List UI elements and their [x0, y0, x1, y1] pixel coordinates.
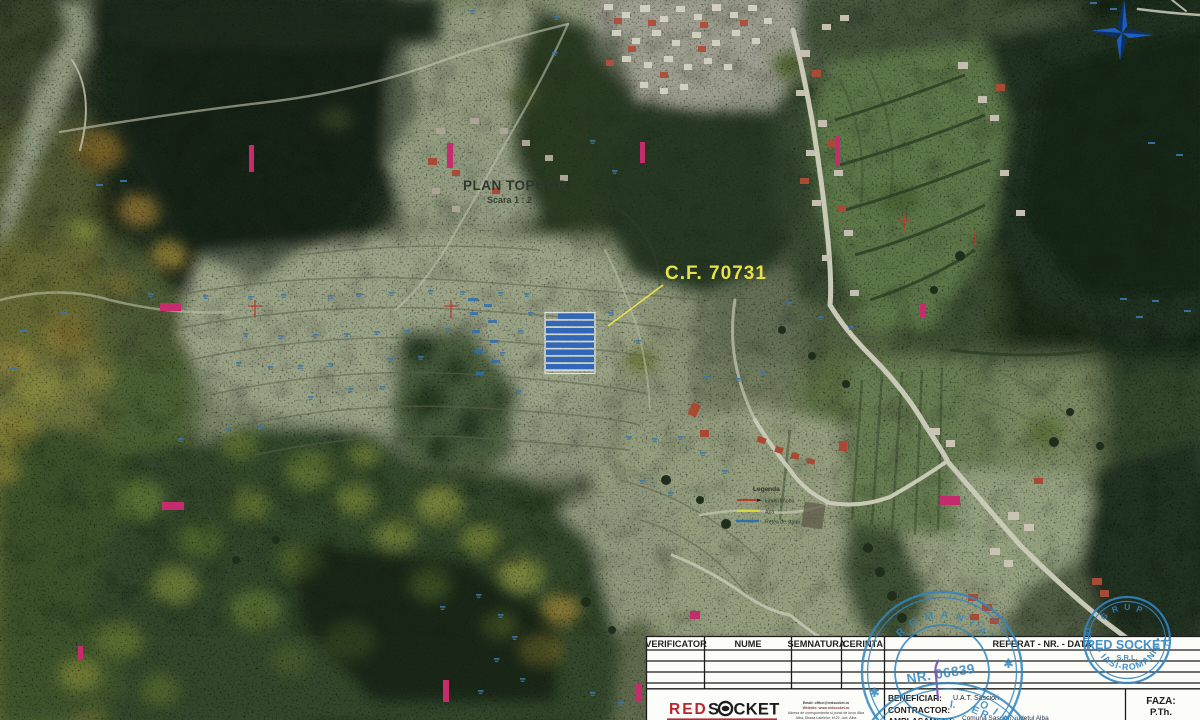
- svg-text:S.R.L.: S.R.L.: [1116, 653, 1137, 662]
- svg-text:Adresa de corespondenta si pun: Adresa de corespondenta si punct de lucr…: [788, 711, 864, 715]
- svg-text:FAZA:: FAZA:: [1146, 696, 1175, 707]
- svg-text:Apa: Apa: [765, 510, 774, 516]
- svg-text:Scara 1 : 2: Scara 1 : 2: [487, 195, 532, 205]
- svg-text:17: 17: [1162, 638, 1171, 647]
- svg-text:VERIFICATOR: VERIFICATOR: [645, 639, 707, 649]
- svg-text:CKET: CKET: [734, 701, 780, 719]
- svg-text:Retea de stalpi: Retea de stalpi: [765, 520, 800, 526]
- svg-text:SEMNATURA: SEMNATURA: [787, 639, 845, 649]
- svg-text:✱: ✱: [1003, 656, 1014, 671]
- svg-text:✱: ✱: [869, 685, 880, 700]
- svg-text:JUD: JUD: [1084, 628, 1093, 644]
- svg-text:Website: www.redsocket.ro: Website: www.redsocket.ro: [803, 706, 851, 710]
- svg-text:Legenda: Legenda: [753, 486, 780, 493]
- svg-text:PLAN TOPOGR: PLAN TOPOGR: [463, 178, 567, 193]
- svg-text:RED: RED: [669, 701, 708, 718]
- svg-text:C.F. 70731: C.F. 70731: [665, 263, 767, 284]
- svg-text:Limita imobil: Limita imobil: [765, 499, 794, 505]
- svg-text:S: S: [708, 701, 719, 719]
- svg-text:Alba, Strada Lalelelor, bl.22,: Alba, Strada Lalelelor, bl.22, Jud. Alba: [796, 716, 857, 720]
- svg-text:REFERAT - NR. - DATA: REFERAT - NR. - DATA: [992, 639, 1091, 649]
- svg-text:Email: office@redsocket.ro: Email: office@redsocket.ro: [803, 701, 850, 705]
- svg-text:NUME: NUME: [734, 639, 761, 649]
- svg-text:P.Th.: P.Th.: [1150, 707, 1172, 718]
- svg-text:CERINTA: CERINTA: [843, 639, 884, 649]
